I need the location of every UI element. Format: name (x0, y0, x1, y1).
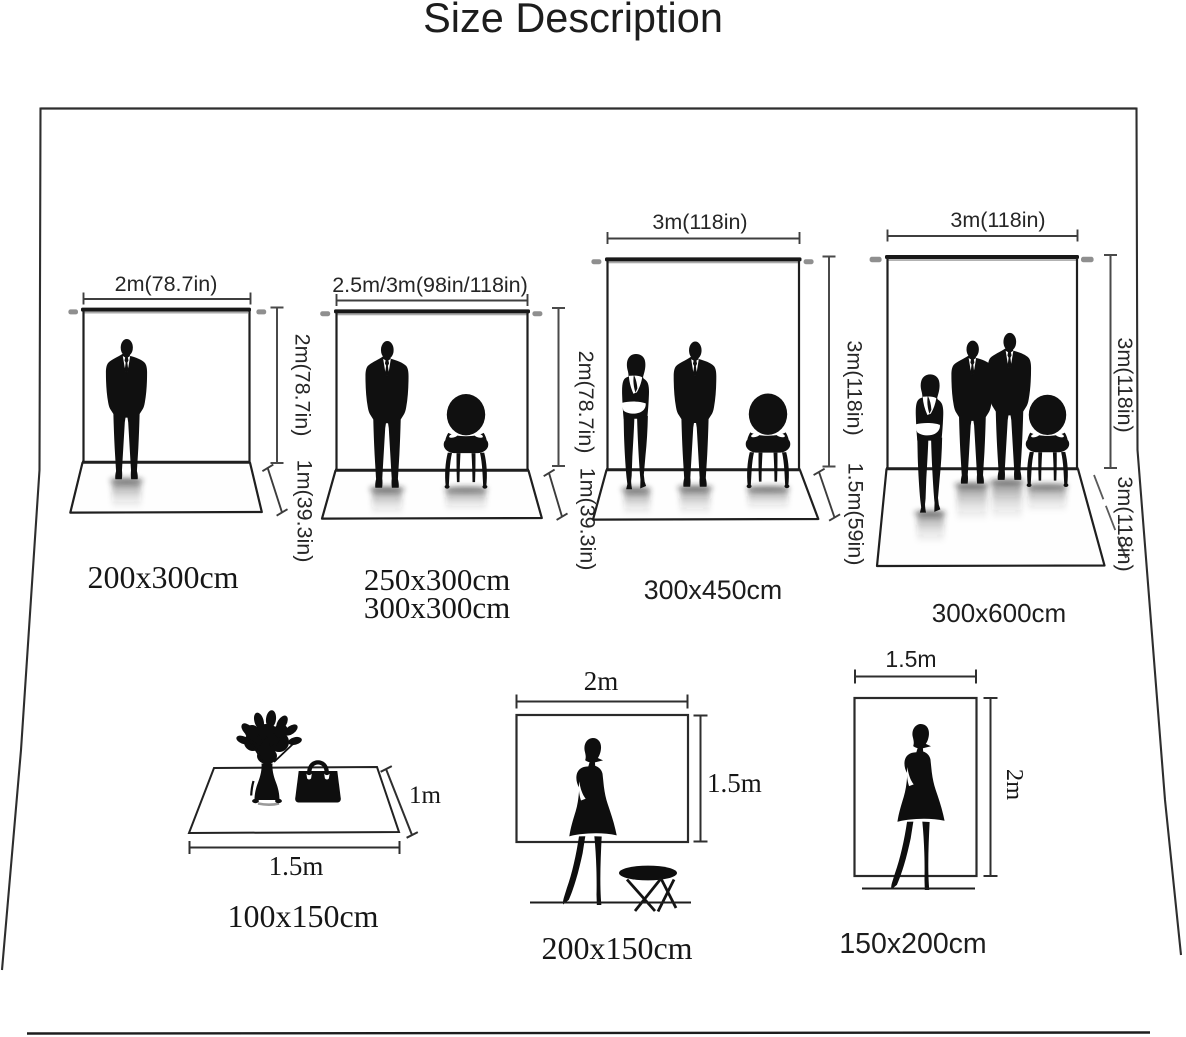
svg-text:150x200cm: 150x200cm (839, 928, 986, 960)
svg-text:3m(118in): 3m(118in) (1113, 476, 1137, 571)
svg-text:200x300cm: 200x300cm (87, 559, 238, 595)
svg-text:1.5m: 1.5m (885, 646, 936, 672)
svg-text:1.5m: 1.5m (269, 851, 324, 881)
svg-text:3m(118in): 3m(118in) (652, 210, 747, 234)
svg-text:1.5m(59in): 1.5m(59in) (844, 463, 868, 566)
svg-text:2m: 2m (584, 666, 619, 696)
svg-text:2.5m/3m(98in/118in): 2.5m/3m(98in/118in) (332, 273, 528, 297)
svg-text:2m: 2m (1001, 769, 1028, 800)
svg-text:3m(118in): 3m(118in) (950, 208, 1045, 232)
svg-text:2m(78.7in): 2m(78.7in) (291, 334, 315, 437)
svg-text:3m(118in): 3m(118in) (843, 340, 867, 435)
svg-text:Size Description: Size Description (423, 0, 723, 41)
svg-text:300x450cm: 300x450cm (644, 575, 783, 605)
svg-text:3m(118in): 3m(118in) (1113, 337, 1137, 432)
svg-text:2m(78.7in): 2m(78.7in) (115, 272, 218, 296)
svg-text:1m: 1m (409, 782, 442, 809)
svg-text:100x150cm: 100x150cm (227, 898, 378, 934)
svg-text:1.5m: 1.5m (707, 768, 762, 798)
svg-text:300x300cm: 300x300cm (364, 590, 510, 625)
svg-text:300x600cm: 300x600cm (932, 598, 1066, 628)
svg-text:200x150cm: 200x150cm (541, 930, 692, 966)
svg-text:1m(39.3in): 1m(39.3in) (293, 460, 317, 563)
svg-text:2m(78.7in): 2m(78.7in) (574, 351, 598, 454)
